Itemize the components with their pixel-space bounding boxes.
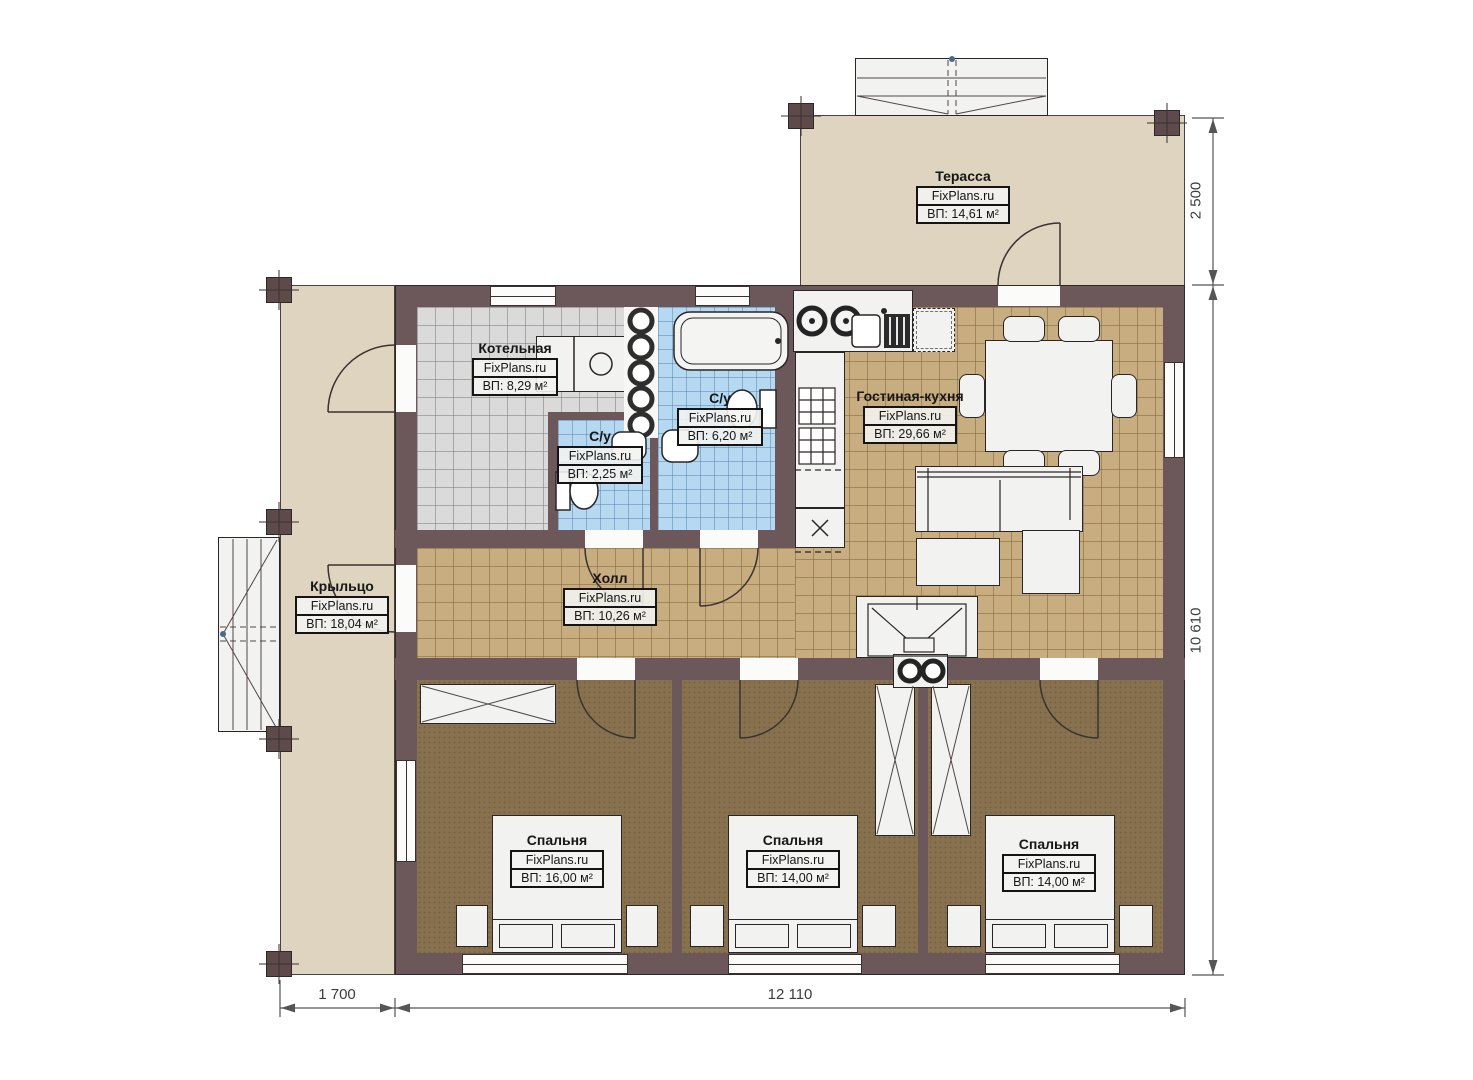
kitchen-cart xyxy=(795,508,845,548)
chair xyxy=(1058,316,1100,342)
wall-bedrooms-top xyxy=(1098,658,1185,680)
fireplace xyxy=(856,596,978,658)
door-opening-boiler xyxy=(396,345,416,412)
chair xyxy=(1111,374,1137,418)
label-bath-small: С/у FixPlans.ru ВП: 2,25 м² xyxy=(545,428,655,484)
door-opening-terrace xyxy=(998,286,1060,306)
room-name: Спальня xyxy=(527,832,587,848)
room-name: Спальня xyxy=(763,832,823,848)
nightstand xyxy=(456,905,488,947)
dim-house-height: 10 610 xyxy=(1188,591,1205,671)
label-bath-big: С/у FixPlans.ru ВП: 6,20 м² xyxy=(665,390,775,446)
window xyxy=(985,954,1120,974)
wall-bedrooms-top xyxy=(635,658,740,680)
wall-bath-block-bottom xyxy=(643,530,700,548)
fridge xyxy=(913,308,955,352)
room-name: Крыльцо xyxy=(310,578,374,594)
kitchen-counter-top xyxy=(793,290,913,352)
terrace-column xyxy=(788,103,814,129)
room-name: Гостиная-кухня xyxy=(856,388,963,404)
kitchen-counter-left xyxy=(795,352,845,508)
dim-terrace-depth: 2 500 xyxy=(1188,161,1205,241)
dim-porch-width: 1 700 xyxy=(297,986,377,1003)
terrace-column xyxy=(1154,110,1180,136)
brand: FixPlans.ru xyxy=(565,590,655,606)
door-opening-bedroom2 xyxy=(740,658,798,680)
wall-bath-block-bottom xyxy=(395,530,585,548)
chair xyxy=(1003,316,1045,342)
brand: FixPlans.ru xyxy=(512,852,602,868)
brand: FixPlans.ru xyxy=(474,360,557,376)
label-hall: Холл FixPlans.ru ВП: 10,26 м² xyxy=(555,570,665,626)
dim-house-width: 12 110 xyxy=(750,986,830,1003)
sofa-chaise xyxy=(1022,530,1080,594)
wardrobe xyxy=(875,684,915,836)
porch-stairs xyxy=(218,537,280,732)
room-area: ВП: 10,26 м² xyxy=(565,606,655,624)
door-opening-bedroom3 xyxy=(1040,658,1098,680)
room-area: ВП: 14,61 м² xyxy=(918,204,1008,222)
wall-bedroom2-3 xyxy=(918,680,928,953)
label-porch: Крыльцо FixPlans.ru ВП: 18,04 м² xyxy=(285,578,399,634)
wall-bath-living xyxy=(775,307,795,538)
nightstand xyxy=(690,905,724,947)
room-area: ВП: 18,04 м² xyxy=(297,614,387,632)
room-name: Терасса xyxy=(935,168,991,184)
nightstand xyxy=(947,905,981,947)
nightstand xyxy=(626,905,658,947)
door-opening-bath-small xyxy=(585,530,643,548)
room-area: ВП: 29,66 м² xyxy=(865,424,955,442)
dining-table xyxy=(985,340,1113,452)
room-area: ВП: 14,00 м² xyxy=(748,868,838,886)
room-area: ВП: 6,20 м² xyxy=(679,426,762,444)
brand: FixPlans.ru xyxy=(748,852,838,868)
floor-plan: Терасса FixPlans.ru ВП: 14,61 м² Котельн… xyxy=(0,0,1473,1080)
room-name: Холл xyxy=(592,570,627,586)
window xyxy=(462,954,628,974)
room-name: С/у xyxy=(709,390,731,406)
door-opening-hall xyxy=(396,565,416,632)
room-area: ВП: 16,00 м² xyxy=(512,868,602,886)
window xyxy=(695,286,750,306)
brand: FixPlans.ru xyxy=(297,598,387,614)
door-opening-bedroom1 xyxy=(577,658,635,680)
label-living-kitchen: Гостиная-кухня FixPlans.ru ВП: 29,66 м² xyxy=(850,388,970,444)
wall-bath-block-bottom xyxy=(758,530,795,548)
room-name: С/у xyxy=(589,428,611,444)
terrace-steps xyxy=(855,58,1048,116)
room-area: ВП: 14,00 м² xyxy=(1004,872,1094,890)
room-name: Спальня xyxy=(1019,836,1079,852)
chimney xyxy=(893,654,948,688)
porch-column xyxy=(266,726,292,752)
porch-column xyxy=(266,951,292,977)
sofa xyxy=(915,466,1083,532)
window xyxy=(728,954,862,974)
window xyxy=(396,760,416,862)
room-area: ВП: 2,25 м² xyxy=(559,464,642,482)
wall-bedroom1-2 xyxy=(672,680,682,953)
label-bedroom-1: Спальня FixPlans.ru ВП: 16,00 м² xyxy=(500,832,614,888)
room-area: ВП: 8,29 м² xyxy=(474,376,557,394)
coffee-table xyxy=(916,538,1000,586)
brand: FixPlans.ru xyxy=(918,188,1008,204)
brand: FixPlans.ru xyxy=(865,408,955,424)
label-boiler: Котельная FixPlans.ru ВП: 8,29 м² xyxy=(455,340,575,396)
window xyxy=(1164,362,1184,458)
door-opening-bath-big xyxy=(700,530,758,548)
wardrobe xyxy=(420,684,556,724)
label-bedroom-3: Спальня FixPlans.ru ВП: 14,00 м² xyxy=(992,836,1106,892)
window xyxy=(490,286,556,306)
label-terrace: Терасса FixPlans.ru ВП: 14,61 м² xyxy=(903,168,1023,224)
brand: FixPlans.ru xyxy=(1004,856,1094,872)
porch-column xyxy=(266,277,292,303)
brand: FixPlans.ru xyxy=(559,448,642,464)
room-name: Котельная xyxy=(478,340,551,356)
nightstand xyxy=(862,905,896,947)
wardrobe xyxy=(931,684,971,836)
porch-column xyxy=(266,509,292,535)
label-bedroom-2: Спальня FixPlans.ru ВП: 14,00 м² xyxy=(736,832,850,888)
nightstand xyxy=(1119,905,1153,947)
wall-bedrooms-top xyxy=(395,658,577,680)
heating-manifold xyxy=(624,307,658,438)
brand: FixPlans.ru xyxy=(679,410,762,426)
